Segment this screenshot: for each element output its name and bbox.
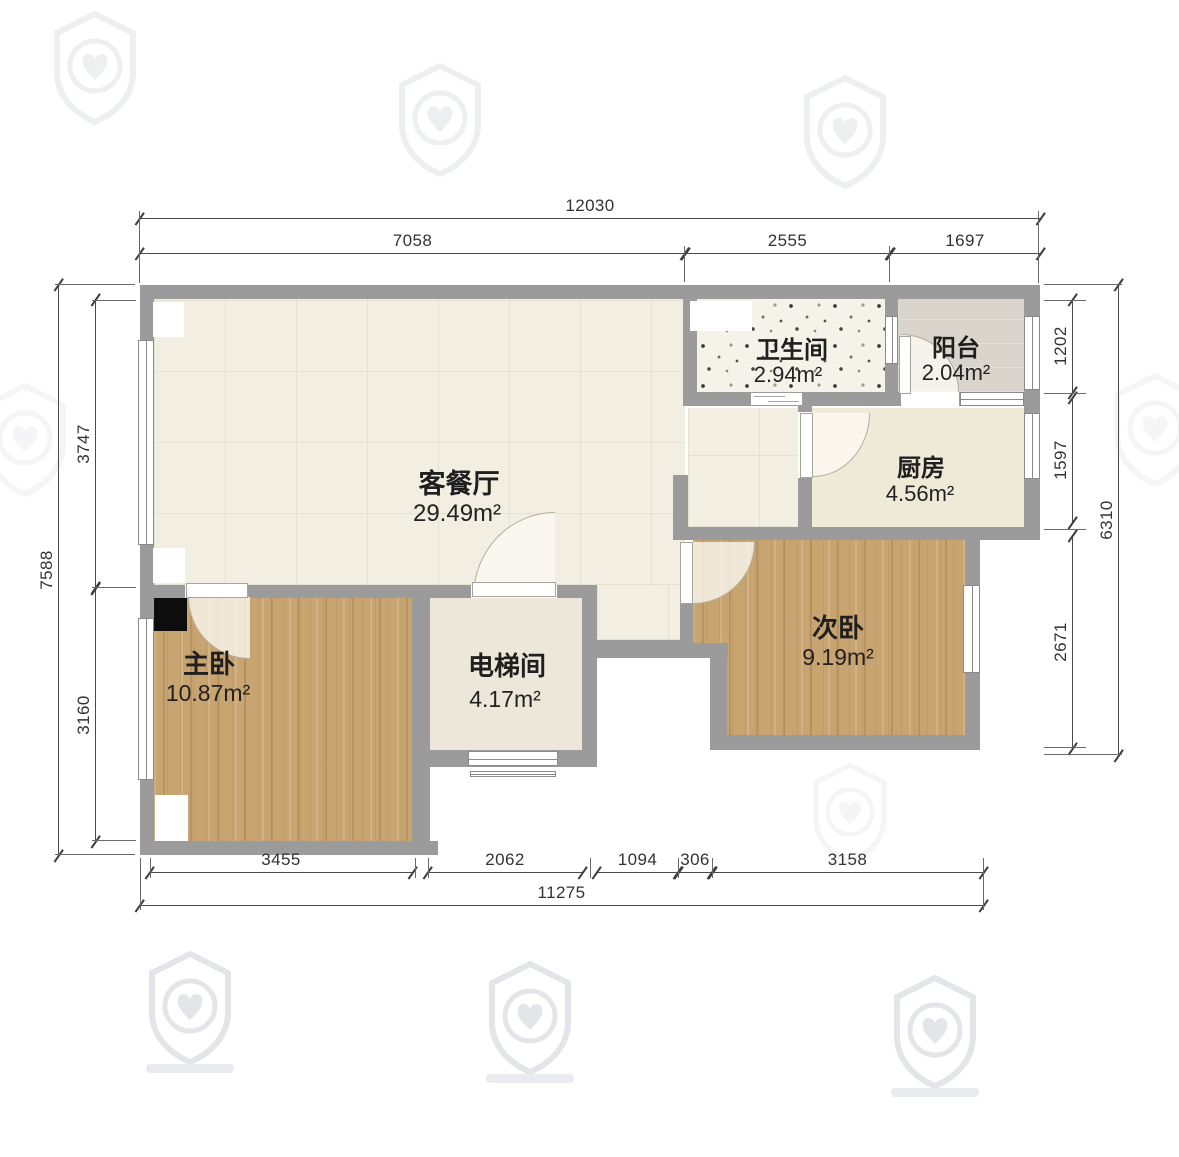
watermark-logo: [885, 972, 985, 1102]
watermark-logo: [1105, 370, 1179, 500]
closet-master-corner: [155, 795, 188, 841]
extension-line: [590, 858, 591, 878]
door-leaf-master: [186, 583, 248, 598]
extension-line: [684, 246, 685, 282]
kitchen-area: 4.56m²: [886, 481, 954, 507]
extension-line: [139, 211, 140, 283]
wall-living-stub: [673, 475, 688, 527]
dim-right-total: 6310: [1118, 285, 1119, 755]
door-leaf-balcony: [899, 336, 911, 394]
door-leaf-entry: [472, 582, 556, 597]
kitchen-name: 厨房: [897, 448, 945, 483]
window-elevator-bottom: [468, 751, 558, 766]
extension-line: [983, 858, 984, 910]
exterior-notch: [693, 658, 710, 750]
dim-bottom-seg-3: 1094: [597, 872, 678, 873]
extension-line: [140, 858, 141, 910]
dim-bottom-seg-2: 2062: [428, 872, 582, 873]
bathroom-fixture: [690, 301, 752, 331]
watermark-logo: [390, 60, 490, 190]
dim-top-seg-1: 7058: [140, 253, 685, 254]
pier-mid-left: [153, 548, 185, 583]
wall-second-bedroom-bottom: [710, 735, 980, 750]
window-second-bedroom-right: [963, 585, 980, 673]
watermark-logo: [0, 380, 75, 510]
extension-line: [712, 858, 713, 878]
extension-line: [1044, 284, 1122, 285]
watermark-logo: [480, 958, 580, 1088]
dim-left-seg-1: 3747: [95, 300, 96, 588]
wall-notch-vertical: [710, 643, 727, 750]
dim-bottom-seg-4: 306: [678, 872, 712, 873]
extension-line: [678, 858, 679, 878]
balcony-area: 2.04m²: [922, 360, 990, 386]
bathroom-name: 卫生间: [756, 330, 828, 365]
dim-top-seg-2: 2555: [685, 253, 890, 254]
master-bedroom-floor: [154, 598, 412, 841]
wall-kitchen-bottom: [673, 527, 1040, 540]
dim-right-seg-3: 2671: [1072, 536, 1073, 748]
window-master-left: [138, 618, 154, 780]
window-balcony-right: [1024, 316, 1040, 390]
door-sliding-bathroom: [750, 392, 803, 406]
living-dining-room-floor: [154, 299, 685, 585]
floorplan-canvas: 客餐厅 29.49m² 卫生间 2.94m² 阳台 2.04m² 厨房 4.56…: [0, 0, 1179, 1157]
door-leaf-second-bedroom: [680, 542, 693, 604]
extension-line: [92, 587, 136, 588]
extension-line: [55, 854, 135, 855]
master-bedroom-name: 主卧: [183, 644, 235, 681]
extension-line: [92, 840, 136, 841]
extension-line: [1044, 300, 1086, 301]
corridor-floor: [597, 585, 680, 640]
dim-right-seg-1: 1202: [1072, 300, 1073, 392]
pier-top-left: [153, 302, 184, 337]
window-kitchen-right: [1024, 413, 1040, 479]
dim-bottom-seg-1: 3455: [150, 872, 412, 873]
wall-elevator-right: [582, 585, 597, 767]
window-sill-elevator: [470, 771, 556, 777]
dim-top-total: 12030: [140, 218, 1040, 219]
dim-right-seg-2: 1597: [1072, 398, 1073, 522]
extension-line: [92, 300, 136, 301]
elevator-room-area: 4.17m²: [469, 686, 541, 713]
watermark-logo: [795, 72, 895, 202]
balcony-name: 阳台: [932, 328, 980, 363]
master-bedroom-area: 10.87m²: [166, 680, 250, 707]
extension-line: [1038, 211, 1039, 283]
living-room-name: 客餐厅: [419, 462, 500, 501]
extension-line: [428, 858, 429, 878]
extension-line: [150, 858, 151, 878]
wall-master-elevator-divider: [412, 585, 430, 855]
bathroom-area: 2.94m²: [754, 362, 822, 388]
dim-bottom-seg-5: 3158: [712, 872, 983, 873]
extension-line: [55, 284, 135, 285]
window-balcony-kitchen: [960, 392, 1024, 406]
extension-line: [1044, 754, 1122, 755]
door-leaf-kitchen: [800, 413, 813, 478]
door-opening-balcony: [901, 392, 959, 406]
dim-left-seg-2: 3160: [95, 588, 96, 841]
extension-line: [1044, 529, 1086, 530]
window-living-left: [138, 340, 154, 545]
wall-corridor-bottom: [582, 640, 693, 658]
second-bedroom-name: 次卧: [812, 608, 864, 645]
extension-line: [415, 858, 416, 878]
watermark-logo: [140, 948, 240, 1078]
dim-top-seg-3: 1697: [890, 253, 1040, 254]
dim-left-total: 7588: [58, 285, 59, 855]
wall-outer-top: [140, 285, 1040, 299]
dim-bottom-total: 11275: [140, 905, 983, 906]
extension-line: [889, 246, 890, 282]
living-hallway-floor: [688, 408, 798, 527]
watermark-logo: [45, 8, 145, 138]
structural-column: [154, 598, 187, 631]
extension-line: [1044, 747, 1086, 748]
living-room-area: 29.49m²: [413, 500, 501, 528]
second-bedroom-area: 9.19m²: [802, 644, 874, 671]
window-bathroom-partition: [885, 316, 898, 364]
extension-line: [1044, 393, 1086, 394]
elevator-room-name: 电梯间: [468, 646, 546, 683]
